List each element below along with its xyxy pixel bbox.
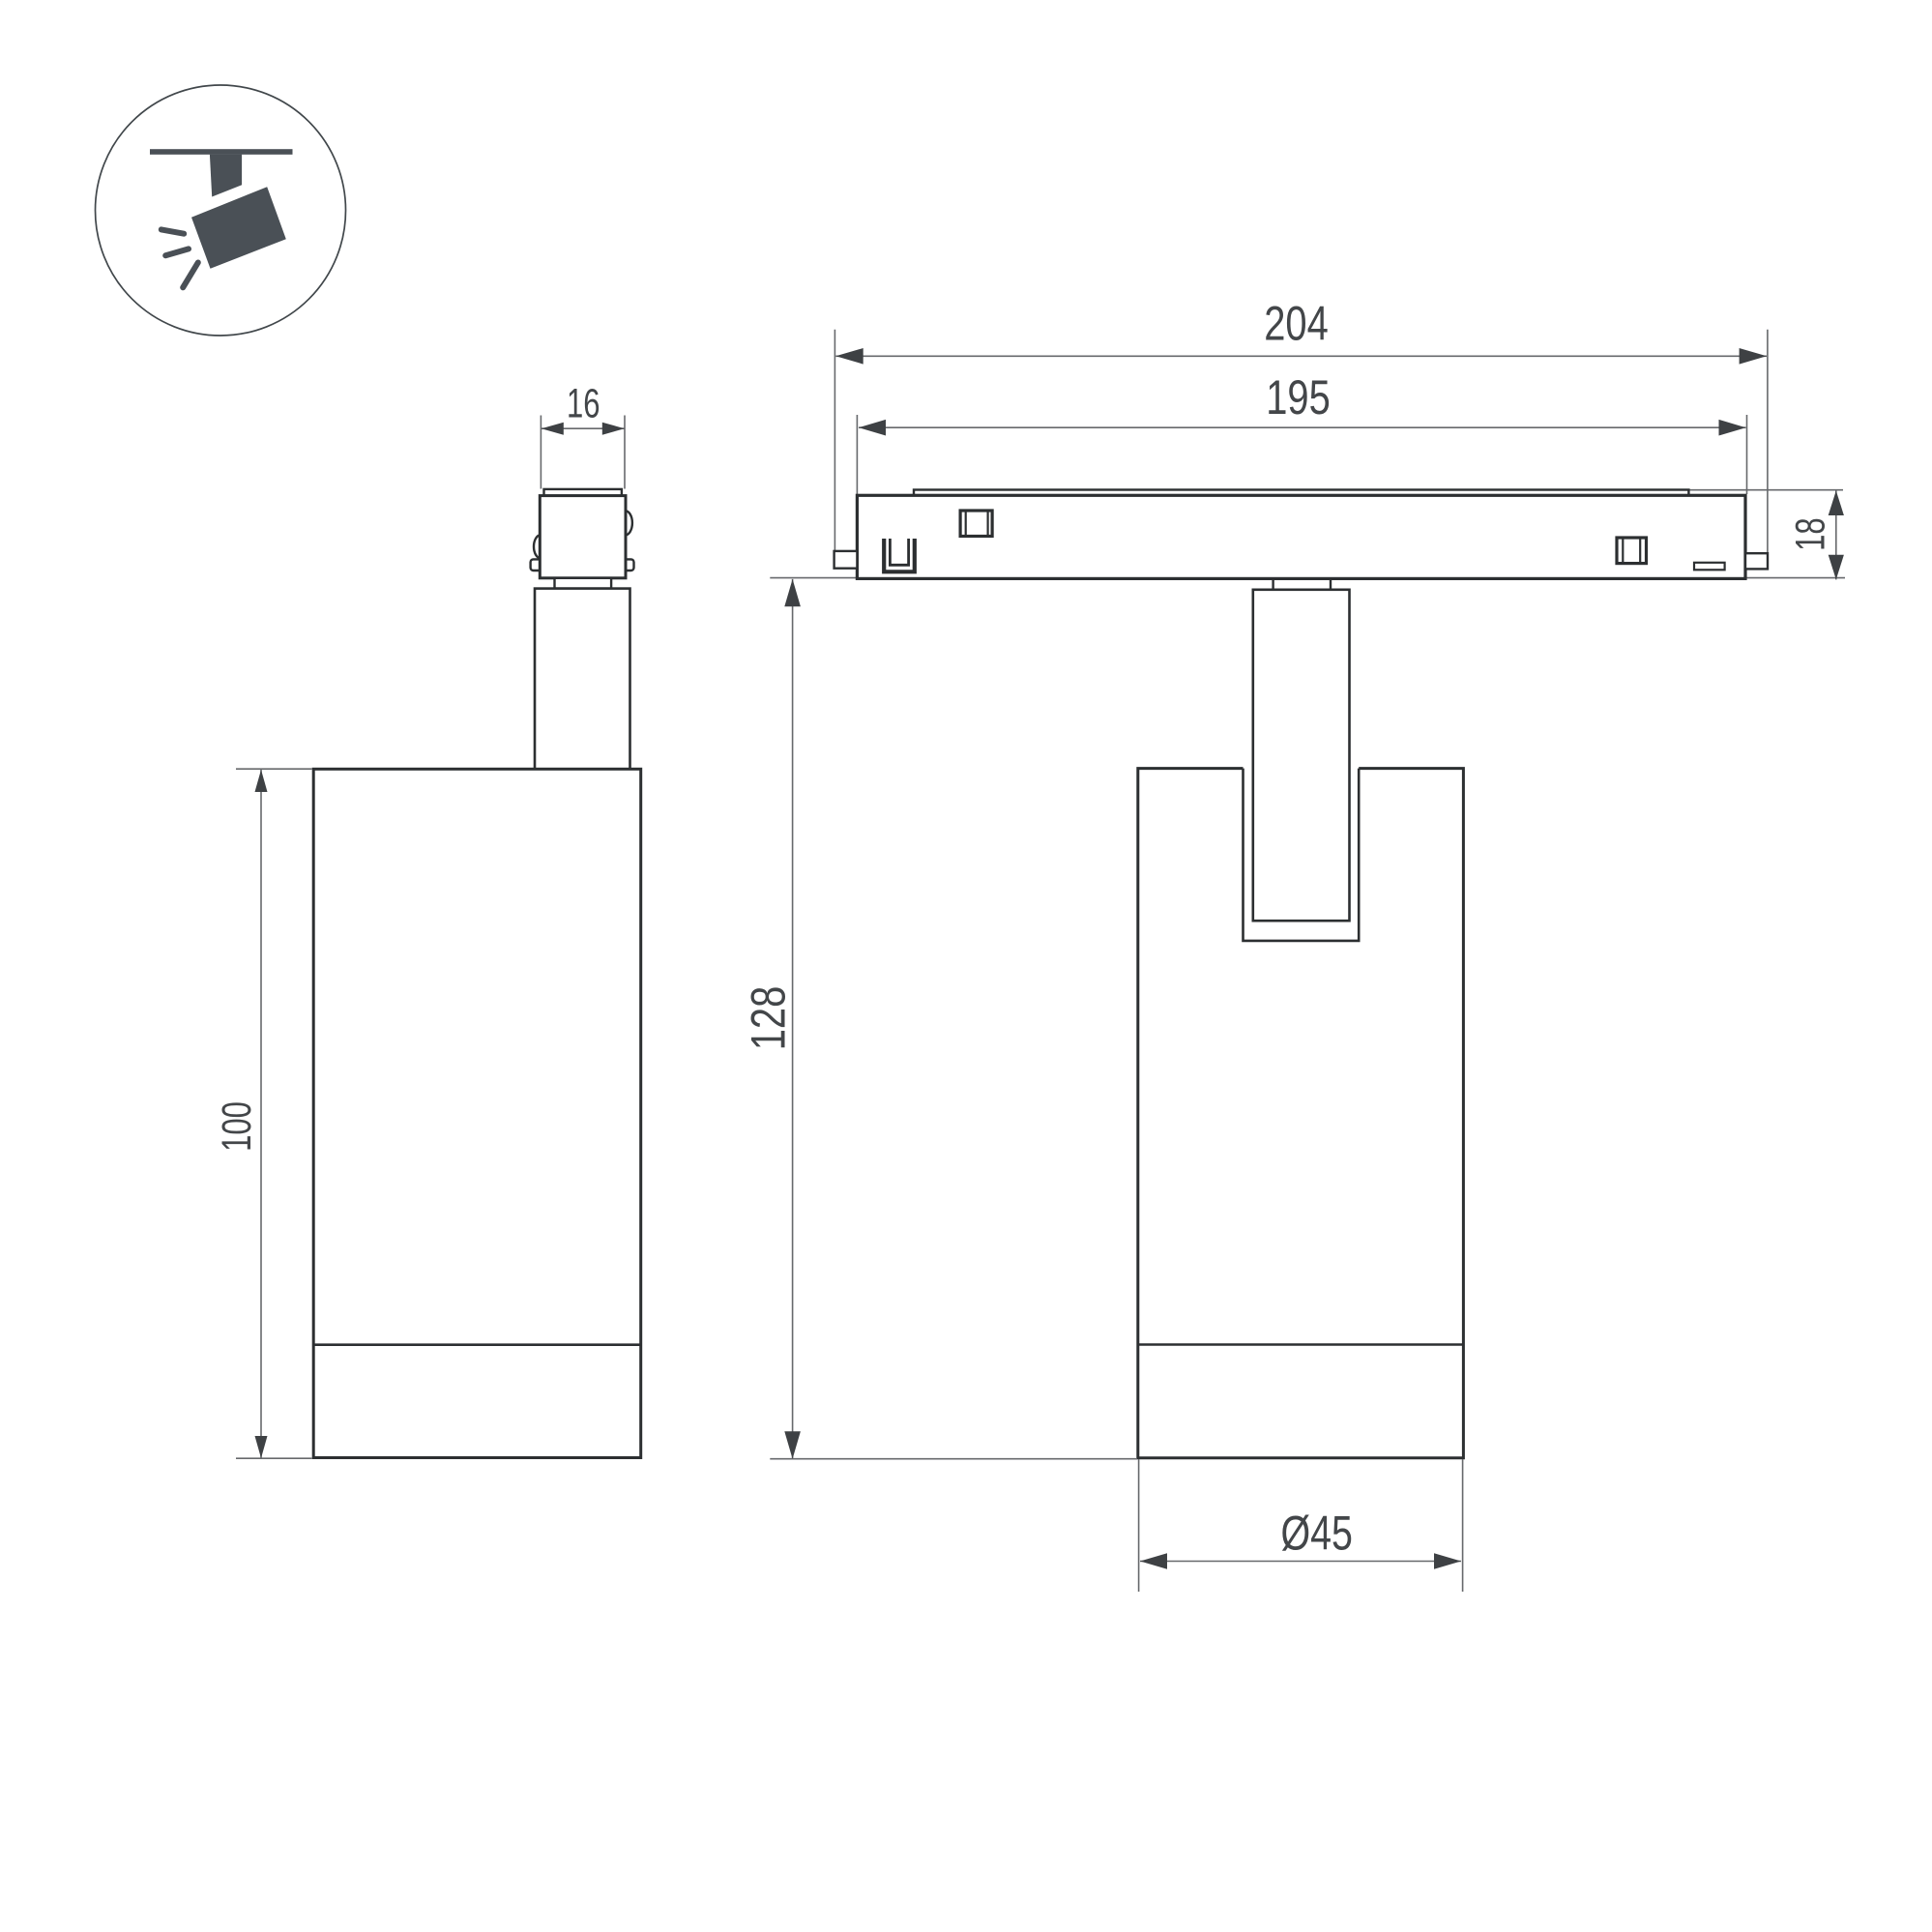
svg-text:18: 18 xyxy=(1786,517,1832,551)
svg-text:204: 204 xyxy=(1264,296,1329,351)
svg-text:16: 16 xyxy=(567,380,600,426)
svg-text:195: 195 xyxy=(1266,370,1331,425)
svg-text:128: 128 xyxy=(741,986,796,1051)
svg-text:100: 100 xyxy=(213,1101,259,1152)
svg-text:Ø45: Ø45 xyxy=(1280,1506,1352,1561)
